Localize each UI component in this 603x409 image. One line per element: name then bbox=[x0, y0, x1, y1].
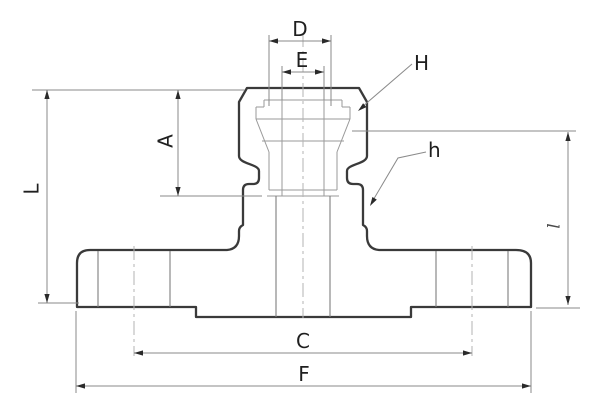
callout-h: h bbox=[370, 138, 441, 206]
dimension-L: L bbox=[20, 90, 50, 303]
dimension-E-label: E bbox=[296, 48, 309, 72]
dimension-A-label: A bbox=[154, 134, 178, 148]
dimension-l: l bbox=[545, 132, 571, 305]
callout-H: H bbox=[358, 51, 429, 111]
dimension-L-label: L bbox=[20, 183, 44, 195]
technical-drawing-page: D E A L l C F bbox=[0, 0, 603, 409]
dimension-l-label: l bbox=[545, 223, 565, 228]
dimension-C: C bbox=[134, 329, 472, 356]
dimension-E: E bbox=[282, 48, 324, 75]
dimension-F-label: F bbox=[298, 362, 310, 386]
dimension-C-label: C bbox=[296, 329, 310, 353]
callout-H-label: H bbox=[414, 51, 429, 75]
callout-h-label: h bbox=[428, 138, 441, 162]
dimension-D: D bbox=[269, 17, 331, 44]
fitting-drawing: D E A L l C F bbox=[0, 0, 603, 409]
dimension-F: F bbox=[76, 362, 531, 389]
part-outline bbox=[77, 88, 531, 317]
dimension-D-label: D bbox=[292, 17, 307, 41]
dimension-A: A bbox=[154, 90, 181, 196]
